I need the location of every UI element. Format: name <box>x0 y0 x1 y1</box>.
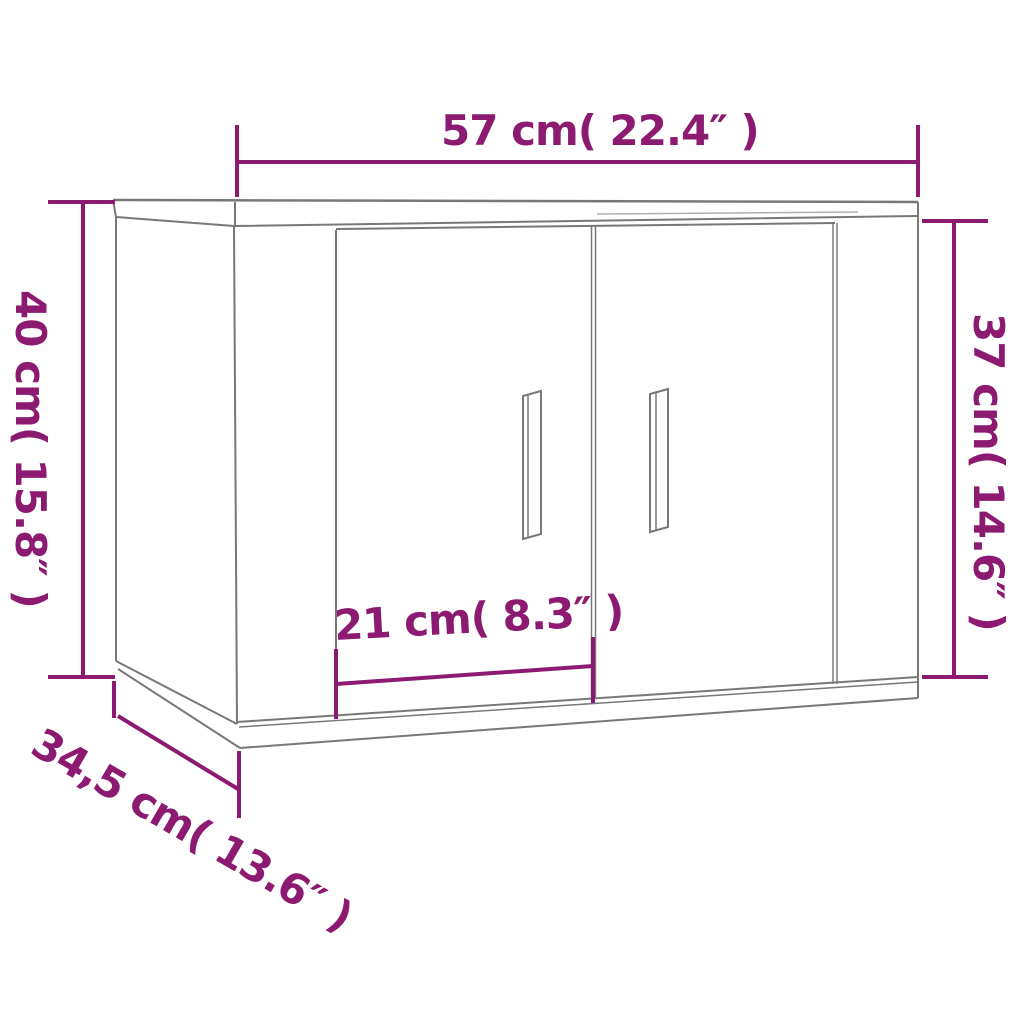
cabinet-outline <box>113 200 918 748</box>
right-door-handle <box>650 389 668 532</box>
left-door-handle <box>523 391 541 539</box>
dimension-height-left-line <box>48 202 115 677</box>
dimension-label-height-right: 37 cm( 14.6″ ) <box>967 313 1009 631</box>
dimension-diagram: 57 cm( 22.4″ ) 40 cm( 15.8″ ) 37 cm( 14.… <box>0 0 1024 1024</box>
dimension-label-width: 57 cm( 22.4″ ) <box>441 110 759 152</box>
dimension-label-height-left: 40 cm( 15.8″ ) <box>9 290 51 608</box>
